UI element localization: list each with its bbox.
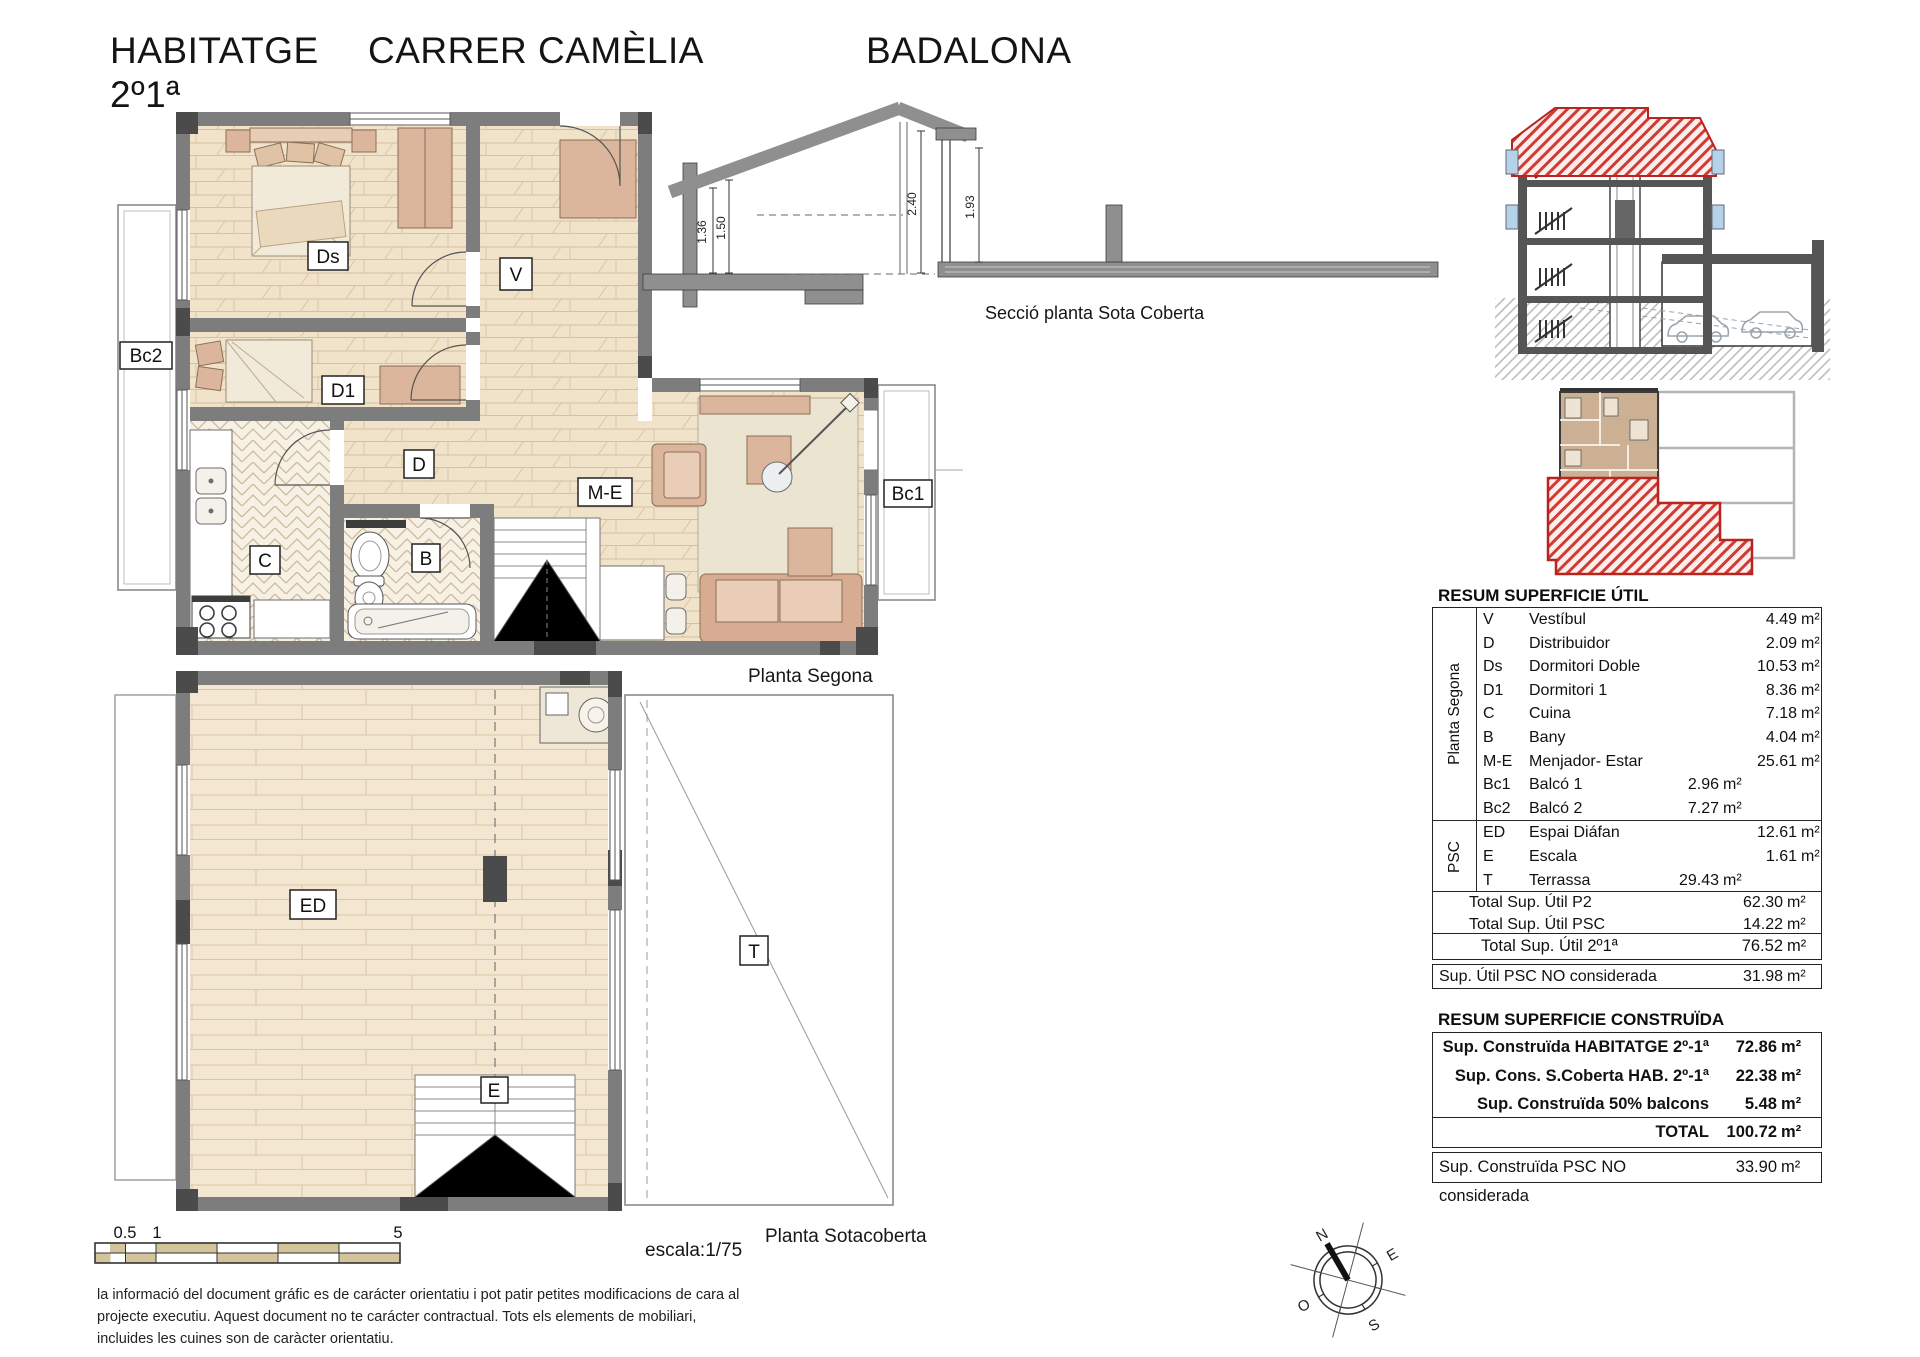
caption-planta-sotacoberta: Planta Sotacoberta	[765, 1226, 927, 1248]
constr-total-row: TOTAL 100.72 m²	[1433, 1118, 1821, 1147]
extra-label: Sup. Construïda PSC NO considerada	[1433, 1153, 1709, 1210]
cell: Total Sup. Útil P2	[1433, 892, 1719, 914]
cell	[1719, 750, 1757, 774]
total-label: TOTAL	[1433, 1118, 1709, 1147]
cell	[1669, 655, 1719, 679]
sheet-title-street: CARRER CAMÈLIA	[368, 30, 704, 72]
extra-label: Sup. Útil PSC NO considerada	[1433, 965, 1719, 988]
highlight-unit-section	[1512, 108, 1716, 176]
compass-rose: N E S O	[1269, 1200, 1427, 1357]
cell: 2.09	[1757, 632, 1797, 656]
cell	[1757, 773, 1797, 797]
util-total-row: Total Sup. Útil P262.30m²	[1433, 892, 1821, 914]
util-table-row: Bc2Balcó 27.27m²	[1477, 797, 1833, 821]
util-group-label: PSC	[1433, 821, 1477, 892]
cell: 10.53	[1757, 655, 1797, 679]
util-table: Planta Segona VVestíbul4.49m²DDistribuid…	[1432, 607, 1822, 893]
util-table-row: EEscala1.61m²	[1477, 845, 1833, 869]
cell: D	[1483, 632, 1529, 656]
cell: E	[1483, 845, 1529, 869]
util-table-row: DsDormitori Doble10.53m²	[1477, 655, 1833, 679]
dim-1-50: 1.50	[714, 216, 728, 240]
room-label-v: V	[510, 265, 523, 286]
cell: 72.86	[1709, 1033, 1777, 1062]
cell	[1797, 797, 1833, 821]
cell: Bc1	[1483, 773, 1529, 797]
util-group-planta-segona: Planta Segona VVestíbul4.49m²DDistribuid…	[1433, 608, 1821, 820]
scale-tick-1: 1	[152, 1224, 161, 1242]
cell: 7.27	[1669, 797, 1719, 821]
constr-extra-row: Sup. Construïda PSC NO considerada 33.90…	[1433, 1153, 1821, 1182]
cell: 2.96	[1669, 773, 1719, 797]
cell: 29.43	[1669, 869, 1719, 893]
cell: Sup. Construïda HABITATGE 2º-1ª	[1433, 1033, 1709, 1062]
lower-floor-plan: ED E T	[115, 671, 893, 1211]
cell: 7.18	[1757, 702, 1797, 726]
cell: 12.61	[1757, 821, 1797, 845]
cell: m²	[1797, 655, 1833, 679]
cell: 22.38	[1709, 1062, 1777, 1091]
scale-tick-05: 0.5	[114, 1224, 137, 1242]
constr-table: Sup. Construïda HABITATGE 2º-1ª72.86m²Su…	[1432, 1032, 1822, 1120]
cell: D1	[1483, 679, 1529, 703]
cell: m²	[1797, 726, 1833, 750]
cell: Terrassa	[1529, 869, 1669, 893]
sideboard	[700, 396, 810, 414]
room-label-bc1: Bc1	[892, 484, 925, 505]
room-label-d: D	[412, 455, 426, 476]
cell: m²	[1797, 632, 1833, 656]
util-table-row: CCuina7.18m²	[1477, 702, 1833, 726]
cell: B	[1483, 726, 1529, 750]
cell: m²	[1777, 1033, 1819, 1062]
cell: Sup. Cons. S.Coberta HAB. 2º-1ª	[1433, 1062, 1709, 1091]
util-table-row: BBany4.04m²	[1477, 726, 1833, 750]
total-value: 76.52	[1719, 934, 1783, 959]
extra-unit: m²	[1777, 1153, 1819, 1210]
extra-value: 33.90	[1709, 1153, 1777, 1210]
cell	[1719, 608, 1757, 632]
compass-n: N	[1313, 1225, 1331, 1245]
room-label-d1: D1	[331, 381, 355, 402]
cell: Distribuidor	[1529, 632, 1669, 656]
constr-table-title: RESUM SUPERFICIE CONSTRUÏDA	[1438, 1010, 1724, 1030]
cell	[1669, 632, 1719, 656]
cell: 8.36	[1757, 679, 1797, 703]
util-extra-box: Sup. Útil PSC NO considerada 31.98 m²	[1432, 964, 1822, 989]
cell: m²	[1797, 608, 1833, 632]
cell: m²	[1797, 821, 1833, 845]
cell: Menjador- Estar	[1529, 750, 1669, 774]
scale-bar: 0.5 1 5	[95, 1224, 403, 1263]
util-totals-box: Total Sup. Útil P262.30m²Total Sup. Útil…	[1432, 891, 1822, 937]
cell: ED	[1483, 821, 1529, 845]
side-cabinet	[788, 528, 832, 576]
rug	[698, 398, 858, 592]
cell: Balcó 1	[1529, 773, 1669, 797]
scale-tick-5: 5	[393, 1224, 402, 1242]
cell	[1757, 797, 1797, 821]
neighbor-outline	[115, 695, 176, 1180]
util-table-row: Bc1Balcó 12.96m²	[1477, 773, 1833, 797]
room-label-b: B	[420, 549, 433, 570]
cell: Sup. Construïda 50% balcons	[1433, 1090, 1709, 1119]
room-label-me: M-E	[588, 483, 623, 504]
cell: Balcó 2	[1529, 797, 1669, 821]
util-table-title: RESUM SUPERFICIE ÚTIL	[1438, 586, 1649, 606]
total-value: 100.72	[1709, 1118, 1777, 1147]
util-grand-total-box: Total Sup. Útil 2º1ª 76.52 m²	[1432, 933, 1822, 960]
cell: m²	[1797, 750, 1833, 774]
caption-escala: escala:1/75	[645, 1240, 742, 1262]
constr-table-row: Sup. Cons. S.Coberta HAB. 2º-1ª22.38m²	[1433, 1062, 1821, 1091]
caption-seccio: Secció planta Sota Coberta	[985, 303, 1204, 324]
stairs-upper	[494, 518, 600, 641]
cell	[1719, 726, 1757, 750]
cell: Bany	[1529, 726, 1669, 750]
cell: Ds	[1483, 655, 1529, 679]
wardrobe-ds	[398, 128, 452, 228]
util-group-psc: PSC EDEspai Diáfan12.61m²EEscala1.61m²TT…	[1433, 820, 1821, 892]
sheet-title-city: BADALONA	[866, 30, 1072, 72]
constr-total-box: TOTAL 100.72 m²	[1432, 1117, 1822, 1148]
cell: Espai Diáfan	[1529, 821, 1669, 845]
cell	[1669, 726, 1719, 750]
cell: 62.30	[1719, 892, 1783, 914]
room-label-t: T	[748, 942, 760, 963]
hall-closet	[560, 140, 636, 218]
cell: 1.61	[1757, 845, 1797, 869]
upper-floor-plan: Ds D1 V D C B M-E Bc1 Bc2	[118, 112, 963, 655]
cell: m²	[1783, 892, 1821, 914]
cell: m²	[1719, 869, 1757, 893]
util-table-row: TTerrassa29.43m²	[1477, 869, 1833, 893]
cell: 25.61	[1757, 750, 1797, 774]
chimney-block	[483, 856, 507, 902]
cell	[1719, 679, 1757, 703]
cell	[1669, 702, 1719, 726]
cell	[1797, 773, 1833, 797]
cell: m²	[1797, 845, 1833, 869]
util-table-row: EDEspai Diáfan12.61m²	[1477, 821, 1833, 845]
cell	[1719, 821, 1757, 845]
sheet-title-habitatge: HABITATGE	[110, 30, 319, 72]
room-label-e: E	[488, 1081, 501, 1102]
room-label-ds: Ds	[316, 247, 339, 268]
util-extra-row: Sup. Útil PSC NO considerada 31.98 m²	[1433, 965, 1821, 988]
cell: Cuina	[1529, 702, 1669, 726]
room-label-c: C	[258, 551, 272, 572]
armchair	[652, 444, 706, 506]
extra-unit: m²	[1783, 965, 1821, 988]
compass-s: S	[1366, 1316, 1383, 1336]
compass-e: E	[1384, 1245, 1401, 1265]
cell	[1719, 632, 1757, 656]
cell: 4.04	[1757, 726, 1797, 750]
constr-table-row: Sup. Construïda 50% balcons5.48m²	[1433, 1090, 1821, 1119]
dim-1-36: 1.36	[695, 220, 709, 244]
plan-sheet: Ds D1 V D C B M-E Bc1 Bc2	[0, 0, 1920, 1357]
cell: Dormitori 1	[1529, 679, 1669, 703]
section-drawing: 1.36 1.50 2.40 1.93	[643, 108, 1438, 307]
disclaimer-text: la informació del document gráfic es de …	[97, 1285, 752, 1350]
room-label-bc2: Bc2	[130, 346, 163, 367]
cell: m²	[1719, 797, 1757, 821]
cell: M-E	[1483, 750, 1529, 774]
total-unit: m²	[1783, 934, 1821, 959]
extra-value: 31.98	[1719, 965, 1783, 988]
total-label: Total Sup. Útil 2º1ª	[1433, 934, 1719, 959]
cell: Vestíbul	[1529, 608, 1669, 632]
cell: m²	[1777, 1062, 1819, 1091]
cell	[1719, 702, 1757, 726]
cell: T	[1483, 869, 1529, 893]
room-label-ed: ED	[300, 896, 326, 917]
total-unit: m²	[1777, 1118, 1819, 1147]
cell: m²	[1777, 1090, 1819, 1119]
cell	[1669, 821, 1719, 845]
util-table-row: D1Dormitori 18.36m²	[1477, 679, 1833, 703]
cell	[1669, 845, 1719, 869]
cell: 4.49	[1757, 608, 1797, 632]
cell: Bc2	[1483, 797, 1529, 821]
cell: m²	[1797, 679, 1833, 703]
util-grand-total-row: Total Sup. Útil 2º1ª 76.52 m²	[1433, 934, 1821, 959]
cell	[1719, 655, 1757, 679]
sofa	[700, 574, 862, 642]
dim-1-93: 1.93	[963, 195, 977, 219]
cell	[1797, 869, 1833, 893]
closet-d1	[380, 366, 460, 404]
cell: Escala	[1529, 845, 1669, 869]
cell	[1719, 845, 1757, 869]
building-section-key	[1495, 108, 1830, 380]
cell	[1669, 608, 1719, 632]
cell: m²	[1797, 702, 1833, 726]
util-table-row: M-EMenjador- Estar25.61m²	[1477, 750, 1833, 774]
balcony-bc2-outline	[118, 205, 176, 590]
constr-extra-box: Sup. Construïda PSC NO considerada 33.90…	[1432, 1152, 1822, 1183]
util-table-row: DDistribuidor2.09m²	[1477, 632, 1833, 656]
sheet-title-unit: 2º1ª	[110, 74, 180, 116]
key-plan	[1548, 388, 1794, 574]
cell: 5.48	[1709, 1090, 1777, 1119]
dim-2-40: 2.40	[905, 192, 919, 216]
constr-table-row: Sup. Construïda HABITATGE 2º-1ª72.86m²	[1433, 1033, 1821, 1062]
cell: C	[1483, 702, 1529, 726]
util-group-label: Planta Segona	[1433, 608, 1477, 820]
compass-o: O	[1295, 1296, 1314, 1317]
cell	[1669, 750, 1719, 774]
cell	[1757, 869, 1797, 893]
cell: m²	[1719, 773, 1757, 797]
caption-planta-segona: Planta Segona	[748, 666, 873, 688]
cell: Dormitori Doble	[1529, 655, 1669, 679]
cell	[1669, 679, 1719, 703]
util-table-row: VVestíbul4.49m²	[1477, 608, 1833, 632]
cell: V	[1483, 608, 1529, 632]
